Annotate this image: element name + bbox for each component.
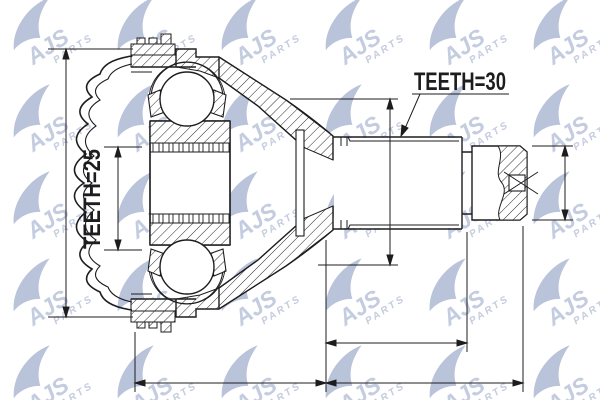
watermark-instance — [0, 249, 96, 342]
watermark-instance — [416, 249, 512, 342]
watermark-instance — [0, 336, 96, 400]
watermark-instance — [0, 0, 96, 81]
ball-bottom — [160, 240, 214, 294]
watermark-instance — [416, 336, 512, 400]
watermark-instance — [520, 75, 600, 168]
watermark-instance — [520, 0, 600, 81]
label-teeth-25: TEETH=25 — [79, 149, 106, 249]
cage-ring-edge — [296, 130, 304, 236]
cv-joint-technical-drawing: AJS PARTS — [0, 0, 600, 400]
watermark-instance — [520, 336, 600, 400]
watermark-instance — [104, 336, 200, 400]
watermark-instance — [208, 336, 304, 400]
ball-top — [160, 72, 214, 126]
center-hole — [509, 175, 525, 191]
watermark-instance — [312, 0, 408, 81]
shaft-spline-end — [472, 146, 538, 220]
inner-race — [150, 121, 230, 245]
label-teeth-30: TEETH=30 — [414, 68, 506, 96]
dimension-housing-length — [135, 332, 326, 392]
shaft — [333, 137, 538, 229]
watermark-instance — [520, 249, 600, 342]
